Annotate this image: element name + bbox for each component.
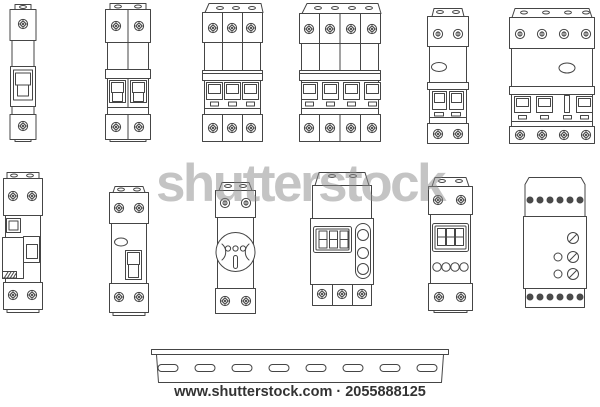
- rcbo-breaker-drawing: [2, 172, 44, 313]
- terminal-dot: [577, 294, 584, 301]
- toggle-switch: [565, 96, 570, 113]
- socket-slot: [234, 256, 238, 269]
- terminal-dot: [547, 197, 554, 204]
- terminal-dot: [537, 294, 544, 301]
- round-button: [433, 263, 441, 271]
- rcd-switch-drawing: [107, 186, 151, 316]
- round-button: [358, 230, 369, 241]
- rail-slot: [306, 365, 326, 372]
- rail-slot: [269, 365, 289, 372]
- watermark-footer-text: www.shutterstock.com · 2055888125: [0, 384, 600, 400]
- round-button: [460, 263, 468, 271]
- socket-pin-hole: [233, 246, 238, 251]
- terminal-dot: [557, 294, 564, 301]
- stock-illustration-image: shutterstock www.shutterstock.com · 2055…: [0, 0, 600, 407]
- triple-pole-circuit-breaker-drawing: [199, 2, 265, 143]
- terminal-dot: [527, 294, 534, 301]
- terminal-dot: [567, 294, 574, 301]
- rail-slot: [343, 365, 363, 372]
- rail-slot: [158, 365, 178, 372]
- terminal-dot: [577, 197, 584, 204]
- indicator-led: [554, 270, 562, 278]
- round-button: [358, 248, 369, 259]
- din-mounting-rail-drawing: [150, 346, 450, 388]
- digital-timer-relay-drawing: [308, 172, 376, 309]
- shutterstock-watermark: shutterstock: [0, 157, 600, 210]
- terminal-dot: [527, 197, 534, 204]
- double-pole-breaker-indicator-drawing: [424, 8, 472, 144]
- double-pole-circuit-breaker-drawing: [103, 3, 153, 142]
- socket-pin-hole: [240, 246, 245, 251]
- terminal-dot: [567, 197, 574, 204]
- round-button: [358, 264, 369, 275]
- terminal-dot: [537, 197, 544, 204]
- multifunction-relay-drawing: [521, 177, 589, 308]
- digital-time-switch-drawing: [426, 177, 475, 313]
- indicator-led: [554, 253, 562, 261]
- rail-slot: [417, 365, 437, 372]
- single-pole-circuit-breaker-drawing: [6, 4, 40, 142]
- din-rail-socket-drawing: [213, 182, 258, 315]
- four-pole-circuit-breaker-drawing: [296, 2, 384, 143]
- four-pole-breaker-indicator-drawing: [506, 8, 598, 144]
- indicator-window: [115, 238, 128, 246]
- indicator-window: [432, 63, 447, 72]
- socket-pin-hole: [225, 246, 230, 251]
- indicator-window: [559, 63, 575, 73]
- rail-slot: [195, 365, 215, 372]
- terminal-dot: [557, 197, 564, 204]
- round-button: [451, 263, 459, 271]
- round-button: [442, 263, 450, 271]
- terminal-dot: [547, 294, 554, 301]
- rail-slot: [380, 365, 400, 372]
- rail-slot: [232, 365, 252, 372]
